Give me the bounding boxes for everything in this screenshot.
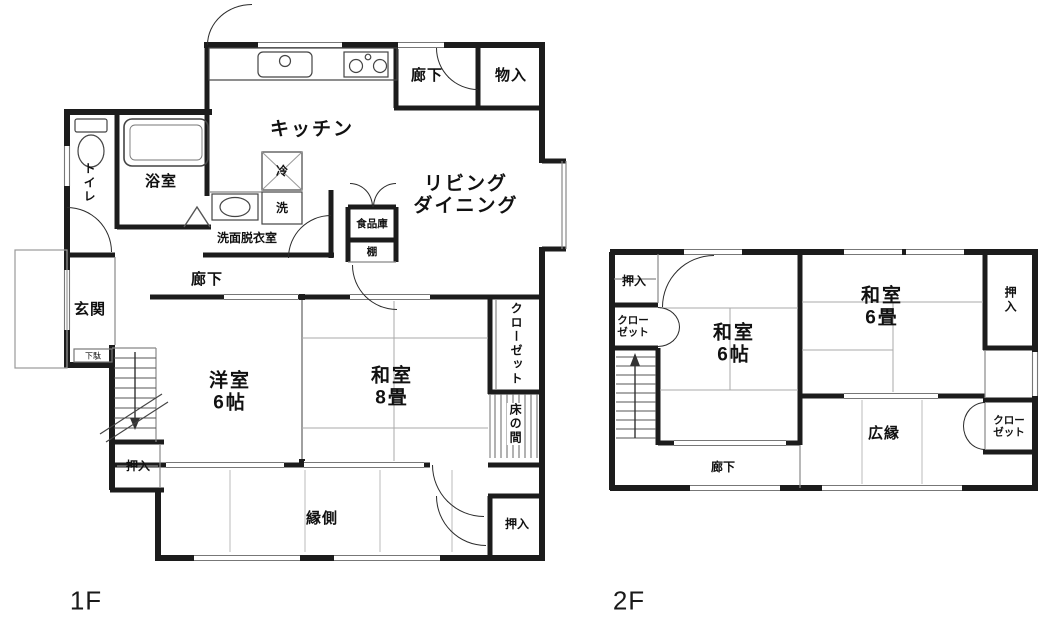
- room-label-closet-left-2f: クロー ゼット: [617, 315, 649, 340]
- engawa-boards: [230, 470, 452, 552]
- room-label-closet-1f: クローゼット: [509, 302, 523, 386]
- kitchen-counter-icon: [209, 48, 397, 80]
- label-washer: 洗: [276, 201, 288, 215]
- toilet-icon: [75, 119, 107, 167]
- label-shelf: 棚: [367, 246, 378, 258]
- room-label-toilet: トイレ: [82, 162, 96, 204]
- room-label-tokonoma: 床の間: [507, 403, 523, 445]
- floor-label-2f: 2F: [613, 586, 645, 617]
- bath-folding-door-icon: [184, 207, 210, 227]
- label-fridge: 冷: [276, 164, 288, 178]
- room-label-oshiire-br: 押入: [505, 517, 529, 531]
- room-label-western-room: 洋室 6帖: [209, 371, 251, 416]
- room-label-entrance: 玄関: [74, 301, 106, 319]
- room-label-closet-right-2f: クロー ゼット: [993, 415, 1025, 440]
- room-label-living-dining: リビング ダイニング: [413, 174, 518, 219]
- vanity-sink-icon: [212, 194, 258, 220]
- room-label-japanese-room-6tatami-2f: 和室 6畳: [861, 286, 903, 331]
- room-label-japanese-room-8: 和室 8畳: [371, 366, 413, 411]
- room-label-hiroen: 広縁: [868, 425, 900, 443]
- tatami-lines-2f: [660, 302, 983, 394]
- porch-outline: [15, 250, 67, 368]
- room-label-oshiire-tl-2f: 押入: [622, 274, 646, 288]
- bathtub-icon: [124, 119, 208, 166]
- post: [299, 294, 305, 300]
- room-label-engawa: 縁側: [306, 510, 338, 528]
- room-label-storage-top: 物入: [495, 67, 527, 85]
- stairs-2f-icon: [616, 353, 656, 438]
- room-label-hall-top: 廊下: [411, 67, 443, 85]
- room-label-kitchen: キッチン: [270, 119, 354, 141]
- floor-label-1f: 1F: [70, 586, 102, 617]
- floorplan-canvas: キッチン 廊下 物入 リビング ダイニング トイレ 浴室 冷 洗 洗面脱衣室 食…: [0, 0, 1058, 627]
- room-label-pantry: 食品庫: [356, 218, 388, 230]
- hiroen-boards: [862, 400, 922, 486]
- room-label-washroom: 洗面脱衣室: [217, 231, 277, 245]
- room-label-japanese-room-6jo-2f: 和室 6帖: [713, 323, 755, 368]
- room-label-bath: 浴室: [145, 173, 177, 191]
- label-shoe-box: 下駄: [85, 351, 101, 360]
- room-label-hall-mid: 廊下: [191, 271, 223, 289]
- room-label-hall-2f: 廊下: [711, 460, 735, 474]
- room-label-oshiire-right-2f: 押入: [1003, 286, 1017, 314]
- room-label-oshiire-bl: 押入: [126, 459, 150, 473]
